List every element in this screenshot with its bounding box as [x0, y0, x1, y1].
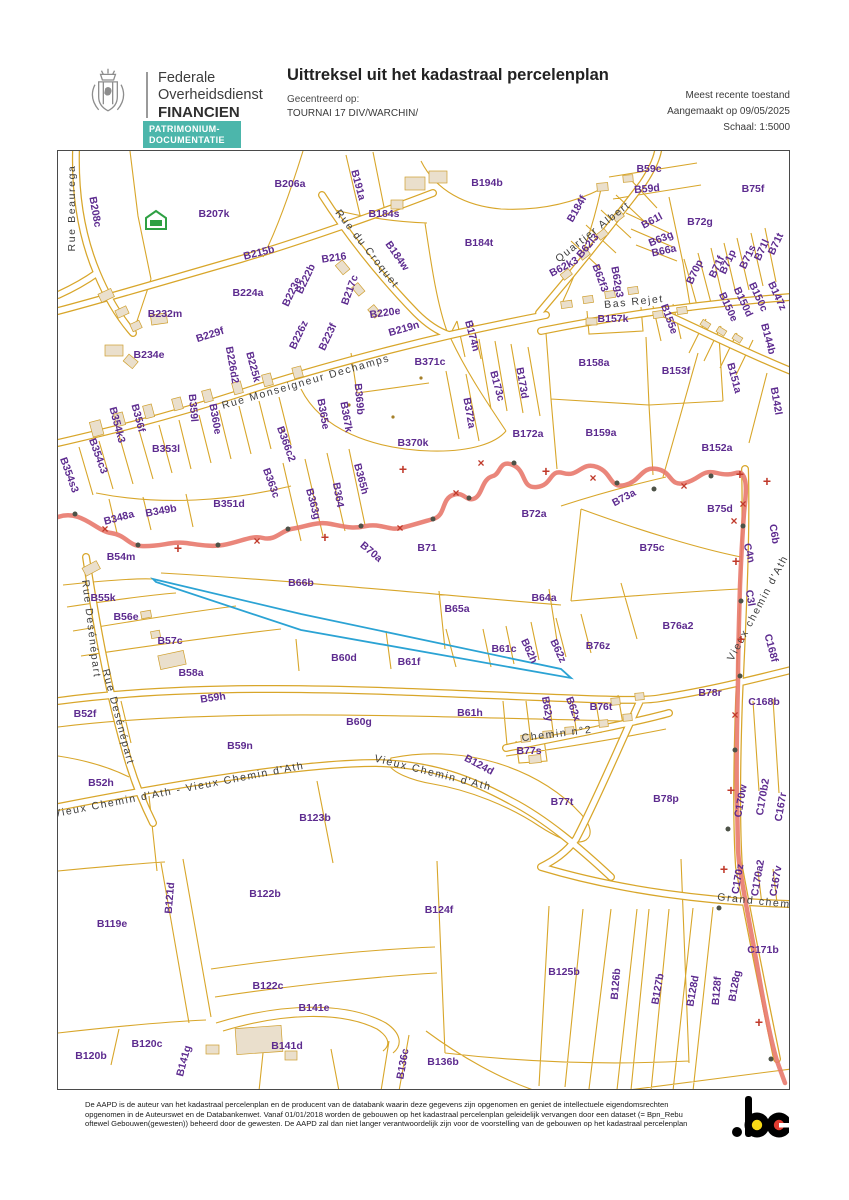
municipal-boundary-line — [58, 464, 785, 1083]
org-line: Overheidsdienst — [158, 87, 263, 104]
centered-on-label: Gecentreerd op: — [287, 94, 359, 105]
organization-name: Federale Overheidsdienst FINANCIEN — [158, 70, 263, 121]
document-meta: Meest recente toestand Aangemaakt op 09/… — [667, 88, 790, 136]
centered-on-value: TOURNAI 17 DIV/WARCHIN/ — [287, 108, 418, 119]
patrimonium-badge: PATRIMONIUM- DOCUMENTATIE — [143, 121, 241, 148]
be-country-logo — [731, 1094, 789, 1145]
page-title: Uittreksel uit het kadastraal percelenpl… — [287, 66, 609, 85]
belgian-coat-of-arms-icon — [86, 66, 130, 127]
cadastral-map: B208cB206aB207kB191aB194bB184sB184wB184t… — [57, 150, 790, 1090]
badge-line: PATRIMONIUM- — [149, 124, 241, 135]
footer-disclaimer: De AAPD is de auteur van het kadastraal … — [85, 1100, 697, 1129]
centered-parcel-house-icon — [144, 209, 168, 236]
org-line: FINANCIEN — [158, 104, 263, 121]
meta-scale: Schaal: 1:5000 — [667, 120, 790, 136]
badge-line: DOCUMENTATIE — [149, 135, 241, 146]
meta-created: Aangemaakt op 09/05/2025 — [667, 104, 790, 120]
header-divider — [146, 72, 148, 118]
parcel-geometry — [58, 151, 790, 1090]
cadastral-extract-page: Federale Overheidsdienst FINANCIEN PATRI… — [0, 0, 849, 1200]
meta-status: Meest recente toestand — [667, 88, 790, 104]
org-line: Federale — [158, 70, 263, 87]
selected-parcel-outline — [153, 579, 571, 678]
